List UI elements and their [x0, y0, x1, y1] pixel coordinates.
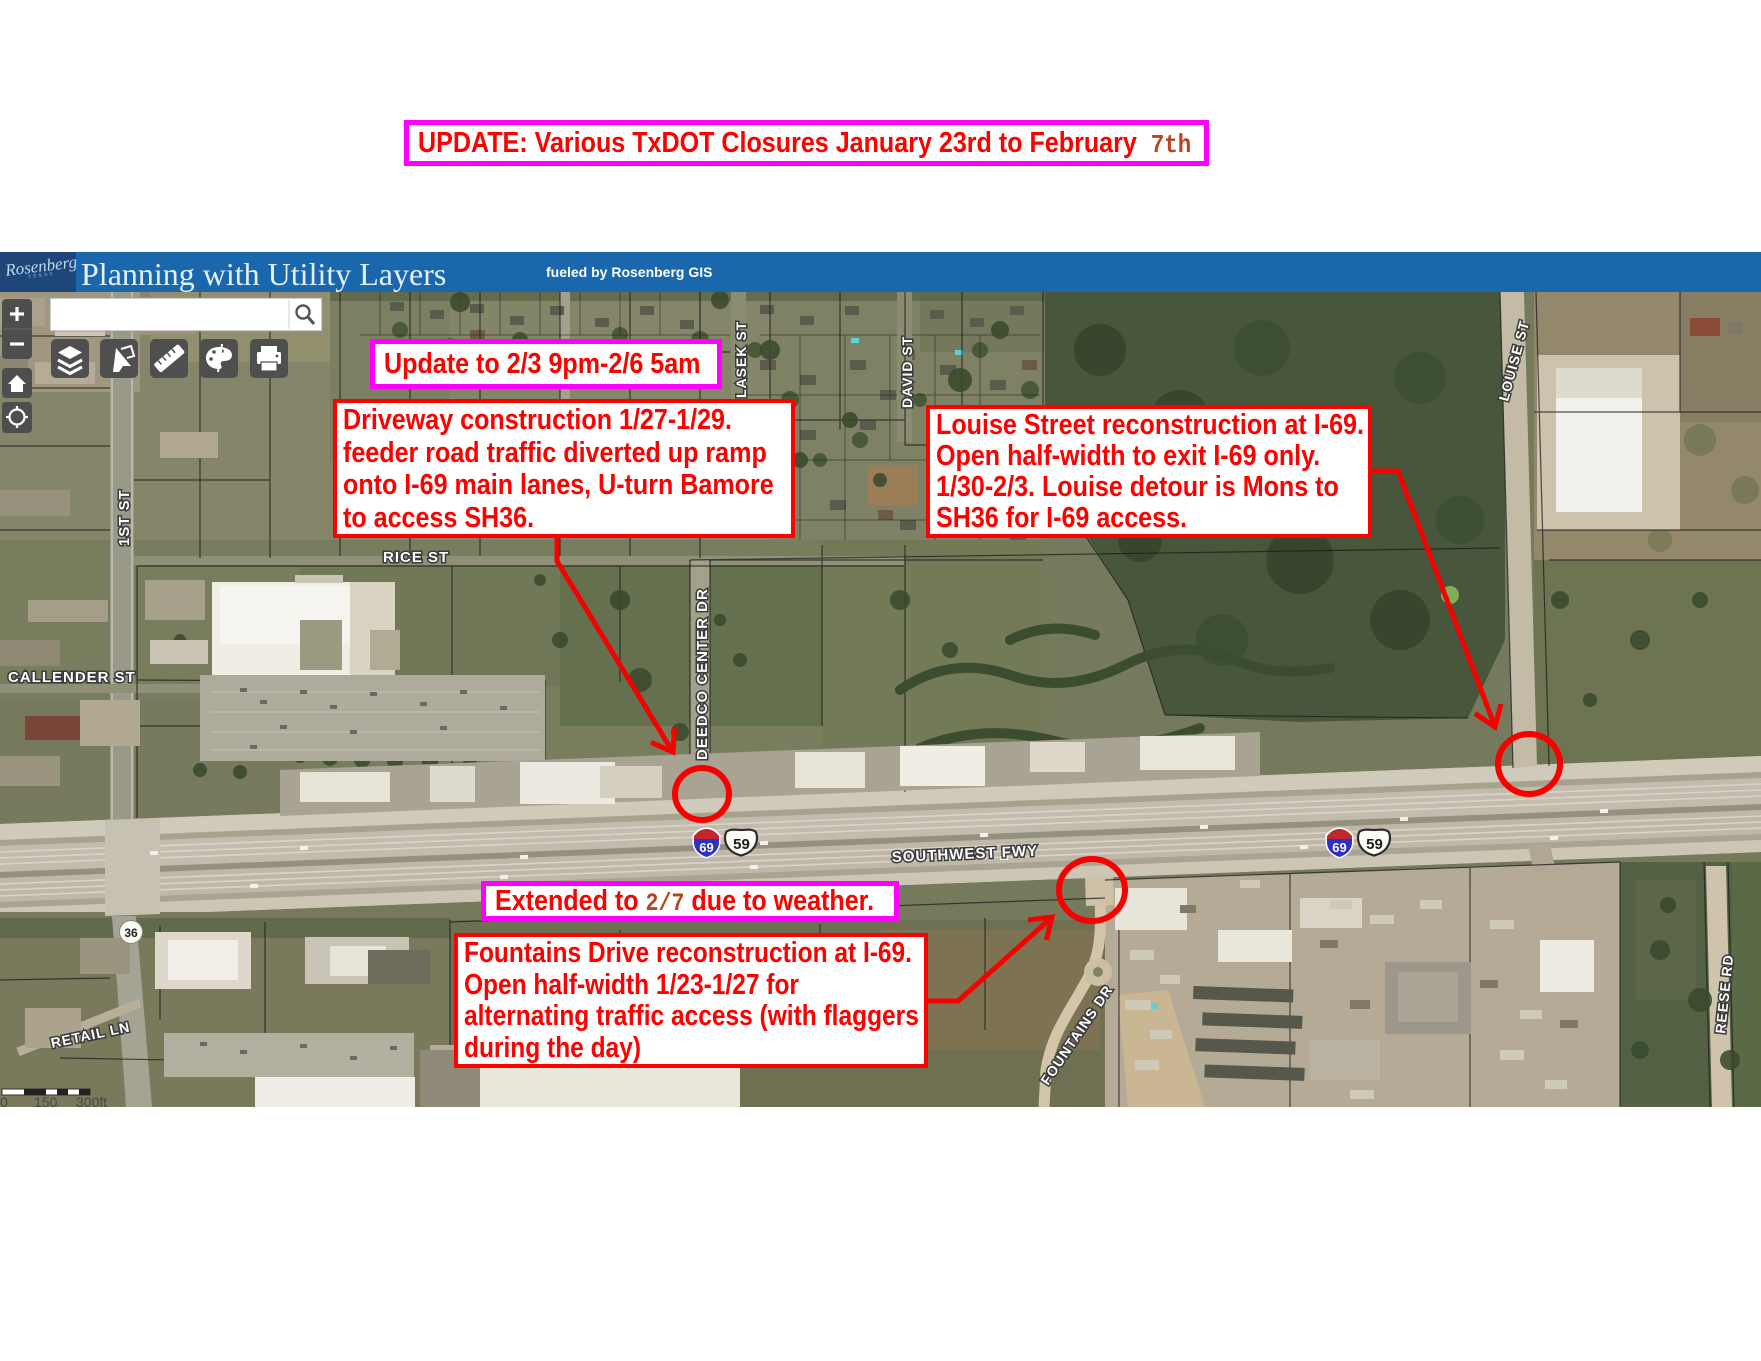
svg-text:DEEDCO CENTER DR: DEEDCO CENTER DR — [694, 588, 711, 760]
svg-text:150: 150 — [34, 1094, 58, 1107]
svg-text:0: 0 — [0, 1094, 8, 1107]
svg-text:CALLENDER ST: CALLENDER ST — [8, 669, 136, 686]
svg-text:69: 69 — [1332, 840, 1346, 855]
svg-text:59: 59 — [1366, 836, 1383, 853]
svg-text:DAVID ST: DAVID ST — [899, 336, 915, 408]
svg-text:300ft: 300ft — [76, 1094, 107, 1107]
svg-text:RICE ST: RICE ST — [383, 549, 449, 566]
svg-text:69: 69 — [699, 840, 713, 855]
svg-text:59: 59 — [733, 836, 750, 853]
svg-text:36: 36 — [124, 926, 138, 940]
svg-text:1ST ST: 1ST ST — [116, 489, 133, 546]
